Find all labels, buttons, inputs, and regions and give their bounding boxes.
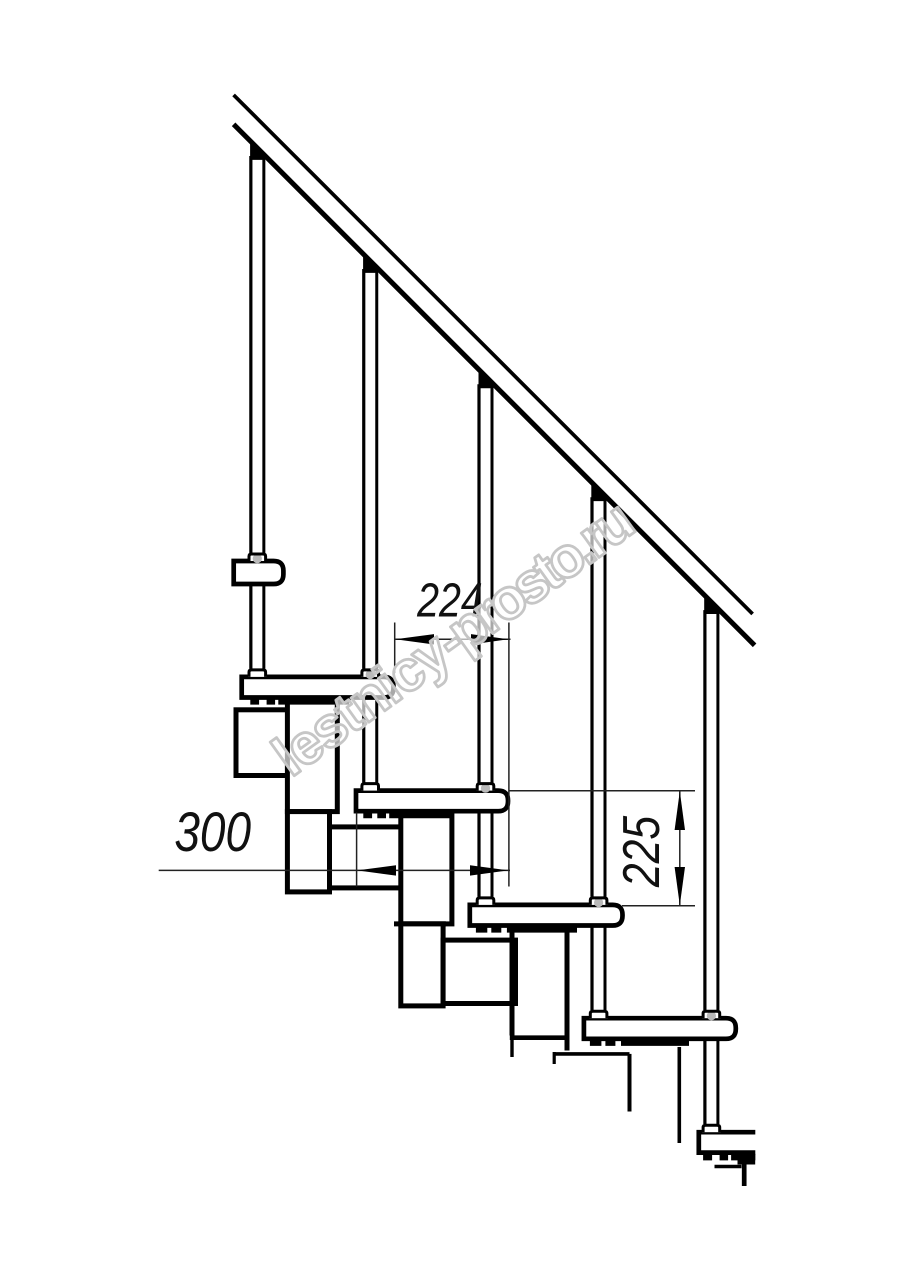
svg-text:225: 225 bbox=[613, 815, 671, 888]
svg-text:300: 300 bbox=[174, 801, 251, 863]
